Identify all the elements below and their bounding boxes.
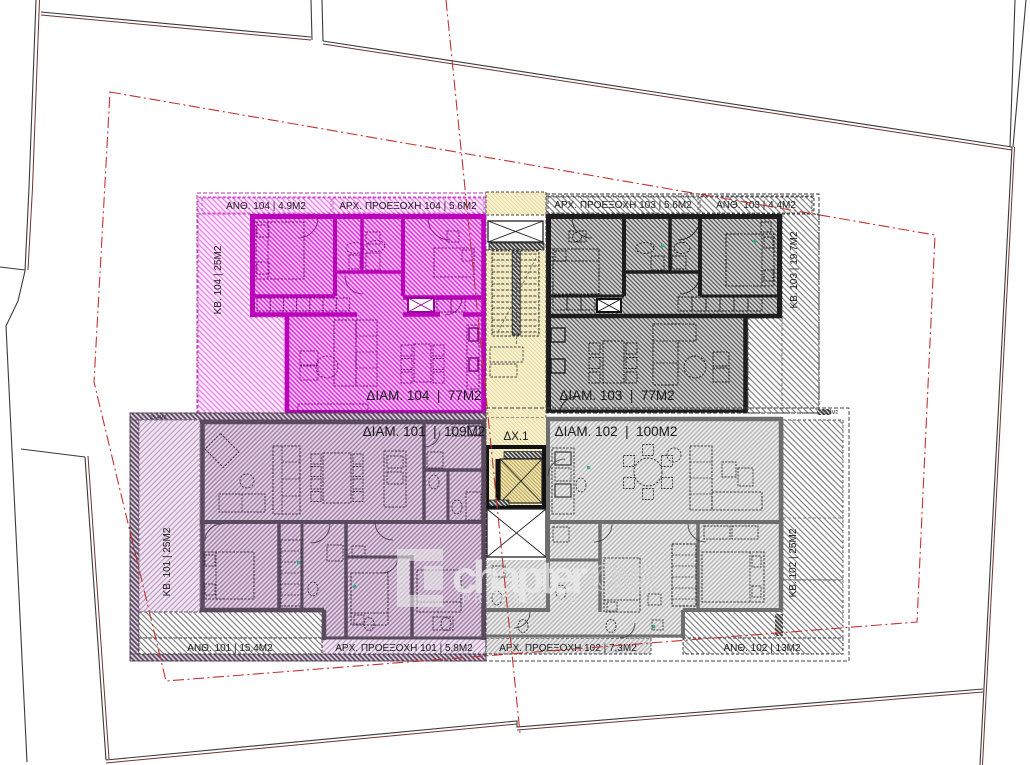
svg-text:15,3Μ2: 15,3Μ2 (822, 410, 839, 416)
svg-text:ΚΒ. 103 | 19.7Μ2: ΚΒ. 103 | 19.7Μ2 (789, 231, 800, 309)
svg-text:ΔΙΑΜ. 103 | 77Μ2: ΔΙΑΜ. 103 | 77Μ2 (559, 388, 674, 403)
svg-text:ΑΡΧ. ΠΡΟΕΞΟΧΗ 101 | 5,8Μ2: ΑΡΧ. ΠΡΟΕΞΟΧΗ 101 | 5,8Μ2 (335, 643, 473, 654)
svg-text:ΔΙΑΜ. 101 | 109Μ2: ΔΙΑΜ. 101 | 109Μ2 (363, 424, 486, 439)
svg-text:ΚΒ. 101 | 25Μ2: ΚΒ. 101 | 25Μ2 (162, 527, 173, 596)
svg-text:ΔΙΑΜ. 104 | 77Μ2: ΔΙΑΜ. 104 | 77Μ2 (366, 388, 481, 403)
svg-text:ΚΒ. 104 | 25Μ2: ΚΒ. 104 | 25Μ2 (213, 245, 224, 314)
svg-text:ΑΡΧ. ΠΡΟΕΞΟΧΗ 103 | 5.6Μ2: ΑΡΧ. ΠΡΟΕΞΟΧΗ 103 | 5.6Μ2 (554, 200, 692, 211)
svg-text:ΔΙΑΜ. 102 | 100Μ2: ΔΙΑΜ. 102 | 100Μ2 (555, 424, 678, 439)
svg-text:15,4Μ2: 15,4Μ2 (150, 415, 167, 421)
svg-text:ΑΡΧ. ΠΡΟΕΞΟΧΗ 104 | 5.6Μ2: ΑΡΧ. ΠΡΟΕΞΟΧΗ 104 | 5.6Μ2 (339, 201, 477, 212)
svg-text:ONE: ONE (591, 558, 657, 599)
svg-text:ΑΝΘ. 101 | 15,4Μ2: ΑΝΘ. 101 | 15,4Μ2 (187, 643, 273, 654)
svg-text:ΑΝΘ. 104 | 4.9Μ2: ΑΝΘ. 104 | 4.9Μ2 (226, 201, 306, 212)
svg-text:ΚΒ. 102 | 25Μ2: ΚΒ. 102 | 25Μ2 (788, 528, 799, 597)
svg-text:ΔΧ.1: ΔΧ.1 (504, 431, 529, 443)
svg-text:ΑΡΧ. ΠΡΟΕΞΟΧΗ 102 | 7,3Μ2: ΑΡΧ. ΠΡΟΕΞΟΧΗ 102 | 7,3Μ2 (499, 643, 637, 654)
svg-text:ΑΝΘ. 102 | 13Μ2: ΑΝΘ. 102 | 13Μ2 (723, 643, 801, 654)
svg-text:PROPERTIES: PROPERTIES (462, 592, 581, 606)
